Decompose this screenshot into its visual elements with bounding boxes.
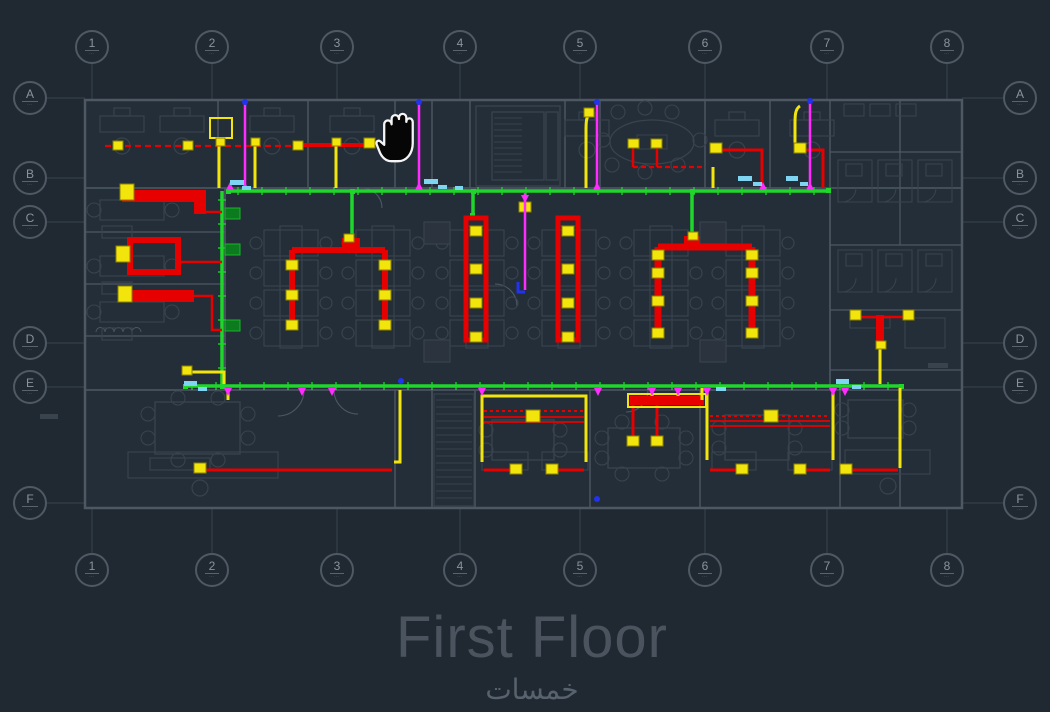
grid-bubble-left-A: A⋯ [13, 81, 47, 115]
grid-bubble-subtext: ⋯ [1017, 508, 1023, 513]
grid-bubble-subtext: ⋯ [209, 575, 215, 580]
grid-bubble-subtext: ⋯ [1017, 348, 1023, 353]
grid-bubble-subtext: ⋯ [944, 575, 950, 580]
watermark: خمسات [396, 673, 668, 706]
grid-bubble-label: 6 [698, 560, 713, 574]
grid-bubble-bottom-1: 1⋯ [75, 553, 109, 587]
grid-bubble-label: D [22, 333, 39, 347]
grid-bubble-label: F [1012, 493, 1027, 507]
grid-bubble-bottom-3: 3⋯ [320, 553, 354, 587]
grid-bubble-label: 5 [573, 560, 588, 574]
grid-bubble-label: A [22, 88, 38, 102]
cad-viewport[interactable]: 1⋯1⋯2⋯2⋯3⋯3⋯4⋯4⋯5⋯5⋯6⋯6⋯7⋯7⋯8⋯8⋯A⋯A⋯B⋯B⋯… [0, 0, 1050, 712]
grid-bubble-bottom-2: 2⋯ [195, 553, 229, 587]
grid-bubble-subtext: ⋯ [577, 575, 583, 580]
grid-bubble-subtext: ⋯ [334, 52, 340, 57]
grid-bubble-label: 4 [453, 37, 468, 51]
grid-bubble-subtext: ⋯ [27, 508, 33, 513]
grid-bubble-bottom-6: 6⋯ [688, 553, 722, 587]
grid-bubble-label: B [1012, 168, 1028, 182]
grid-bubble-label: 1 [85, 560, 100, 574]
grid-bubble-subtext: ⋯ [457, 52, 463, 57]
grid-bubble-subtext: ⋯ [27, 392, 33, 397]
grid-bubble-label: E [1012, 377, 1028, 391]
grid-bubble-label: C [22, 212, 39, 226]
drawing-title: First Floor [396, 604, 668, 671]
grid-bubble-right-E: E⋯ [1003, 370, 1037, 404]
grid-bubble-top-5: 5⋯ [563, 30, 597, 64]
grid-bubble-top-7: 7⋯ [810, 30, 844, 64]
grid-bubble-label: 2 [205, 560, 220, 574]
grid-bubble-top-4: 4⋯ [443, 30, 477, 64]
grid-bubble-label: 7 [820, 37, 835, 51]
grid-bubble-top-8: 8⋯ [930, 30, 964, 64]
grid-bubble-label: 8 [940, 560, 955, 574]
grid-bubble-label: 1 [85, 37, 100, 51]
grid-bubble-subtext: ⋯ [457, 575, 463, 580]
grid-bubble-subtext: ⋯ [1017, 392, 1023, 397]
grid-bubble-subtext: ⋯ [334, 575, 340, 580]
grid-bubble-label: 3 [330, 560, 345, 574]
grid-bubble-left-E: E⋯ [13, 370, 47, 404]
grid-bubble-subtext: ⋯ [1017, 103, 1023, 108]
grid-bubble-label: D [1012, 333, 1029, 347]
grid-bubble-bottom-7: 7⋯ [810, 553, 844, 587]
grid-bubble-subtext: ⋯ [1017, 183, 1023, 188]
grid-bubble-right-C: C⋯ [1003, 205, 1037, 239]
grid-bubble-subtext: ⋯ [577, 52, 583, 57]
grid-bubble-label: B [22, 168, 38, 182]
grid-bubble-right-B: B⋯ [1003, 161, 1037, 195]
grid-bubble-label: 2 [205, 37, 220, 51]
grid-bubble-subtext: ⋯ [944, 52, 950, 57]
grid-bubble-top-3: 3⋯ [320, 30, 354, 64]
grid-bubble-label: 5 [573, 37, 588, 51]
grid-bubble-left-B: B⋯ [13, 161, 47, 195]
grid-bubble-bottom-5: 5⋯ [563, 553, 597, 587]
grid-bubble-subtext: ⋯ [27, 348, 33, 353]
grid-bubble-top-2: 2⋯ [195, 30, 229, 64]
grid-bubble-subtext: ⋯ [824, 52, 830, 57]
grid-bubble-top-1: 1⋯ [75, 30, 109, 64]
grid-bubble-top-6: 6⋯ [688, 30, 722, 64]
grid-bubble-left-C: C⋯ [13, 205, 47, 239]
title-block: First Floor خمسات [396, 604, 668, 706]
grid-bubble-label: A [1012, 88, 1028, 102]
grid-bubble-subtext: ⋯ [89, 52, 95, 57]
grid-bubble-right-F: F⋯ [1003, 486, 1037, 520]
grid-bubble-subtext: ⋯ [1017, 227, 1023, 232]
grid-bubble-subtext: ⋯ [824, 575, 830, 580]
grid-bubble-subtext: ⋯ [27, 103, 33, 108]
grid-bubble-right-A: A⋯ [1003, 81, 1037, 115]
grid-bubble-label: 7 [820, 560, 835, 574]
grid-bubble-subtext: ⋯ [702, 575, 708, 580]
grid-bubble-label: 6 [698, 37, 713, 51]
grid-bubble-bottom-4: 4⋯ [443, 553, 477, 587]
grid-bubble-left-D: D⋯ [13, 326, 47, 360]
grid-bubble-label: E [22, 377, 38, 391]
grid-bubble-subtext: ⋯ [27, 227, 33, 232]
grid-bubble-right-D: D⋯ [1003, 326, 1037, 360]
grid-bubble-label: 8 [940, 37, 955, 51]
grid-bubble-bottom-8: 8⋯ [930, 553, 964, 587]
grid-bubble-label: 3 [330, 37, 345, 51]
grid-bubble-subtext: ⋯ [89, 575, 95, 580]
grid-bubble-left-F: F⋯ [13, 486, 47, 520]
grid-bubble-subtext: ⋯ [209, 52, 215, 57]
grid-bubble-label: F [22, 493, 37, 507]
grid-bubble-subtext: ⋯ [27, 183, 33, 188]
grid-bubble-label: 4 [453, 560, 468, 574]
grid-bubble-label: C [1012, 212, 1029, 226]
grid-bubble-subtext: ⋯ [702, 52, 708, 57]
